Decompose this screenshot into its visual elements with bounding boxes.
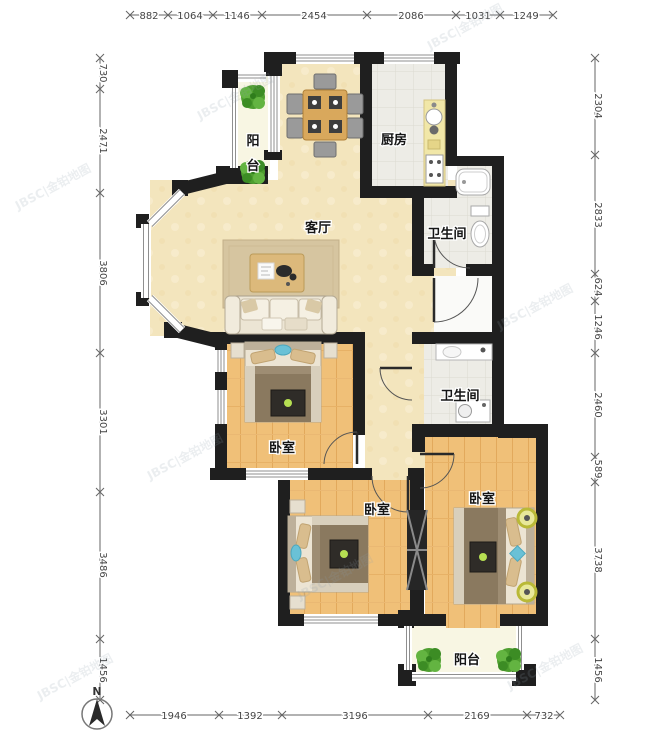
sofa — [225, 296, 337, 334]
window-bedroom-master-1 — [215, 350, 227, 372]
living-set — [223, 240, 339, 334]
nightstand — [231, 343, 244, 358]
dining-chair — [347, 118, 363, 138]
floor-plan-page: 客厅 厨房 卫生间 卫生间 卧室 卧室 卧室 阳 台 阳台 882 1064 1… — [0, 0, 672, 737]
window-bedroom-master-south — [246, 468, 308, 480]
dim-label: 1392 — [237, 711, 262, 722]
dimension-labels-right: 2304 2833 624 1246 2460 589 3738 1456 — [592, 93, 603, 682]
window-kitchen — [384, 52, 434, 64]
label-bath-upper: 卫生间 — [427, 226, 466, 242]
nightstand — [324, 343, 337, 358]
dim-label: 732 — [534, 711, 553, 722]
sink-faucet — [430, 126, 439, 135]
dim-label: 3738 — [592, 547, 603, 572]
plant — [416, 648, 441, 672]
dim-label: 1249 — [513, 11, 538, 22]
dim-label: 1246 — [592, 314, 603, 339]
dim-label: 2454 — [301, 11, 326, 22]
dim-label: 589 — [592, 459, 603, 478]
watermark-text: JBSC|金铂地图 — [11, 160, 93, 213]
label-bedroom-right: 卧室 — [469, 491, 495, 507]
dim-label: 2460 — [592, 392, 603, 417]
dim-label: 1064 — [177, 11, 202, 22]
compass-icon: N — [82, 685, 112, 729]
toilet-tank — [471, 206, 489, 216]
compass-north-label: N — [92, 685, 101, 698]
label-living: 客厅 — [305, 220, 331, 236]
watermark-text: JBSC|金铂地图 — [493, 280, 575, 333]
nightstand — [290, 500, 305, 513]
dim-label: 1146 — [224, 11, 249, 22]
stove — [426, 155, 443, 183]
wardrobe — [407, 510, 427, 590]
dim-label: 882 — [139, 11, 158, 22]
dim-label: 2169 — [464, 711, 489, 722]
dining-chair — [287, 118, 303, 138]
dining-chair — [287, 94, 303, 114]
dimension-labels-left: 730 2471 3806 3301 3486 1456 — [97, 63, 108, 682]
dim-label: 3486 — [97, 552, 108, 577]
dim-label: 2086 — [398, 11, 423, 22]
plant — [496, 648, 521, 672]
dim-label: 624 — [592, 277, 603, 296]
vestibule-floor — [434, 276, 492, 332]
kitchen-sink — [426, 109, 442, 125]
window-bedroom-master-2 — [215, 390, 227, 424]
label-bath-lower: 卫生间 — [440, 388, 479, 404]
hallway-floor — [365, 332, 425, 480]
dim-label: 3806 — [97, 260, 108, 285]
label-bedroom-mid: 卧室 — [364, 502, 390, 518]
dim-label: 2304 — [592, 93, 603, 118]
dining-chair — [314, 74, 336, 89]
kitchen-counter — [424, 100, 445, 186]
watermark-text: JBSC|金铂地图 — [423, 0, 505, 53]
dim-label: 3196 — [342, 711, 367, 722]
window-dining — [296, 52, 354, 64]
dim-label: 3301 — [97, 409, 108, 434]
dim-label: 730 — [97, 63, 108, 82]
label-bedroom-master: 卧室 — [269, 440, 295, 456]
dim-label: 2471 — [97, 128, 108, 153]
table-decor — [276, 265, 292, 277]
dining-chair — [347, 94, 363, 114]
label-kitchen: 厨房 — [381, 132, 407, 148]
dim-label: 2833 — [592, 202, 603, 227]
dim-label: 1456 — [592, 657, 603, 682]
window-bedroom-mid-south — [304, 614, 378, 626]
wash-basin — [443, 347, 461, 358]
floor-plan-canvas: 客厅 厨房 卫生间 卫生间 卧室 卧室 卧室 阳 台 阳台 882 1064 1… — [0, 0, 672, 737]
label-balcony-top-2: 台 — [246, 158, 259, 174]
label-balcony-bottom: 阳台 — [454, 652, 480, 668]
bed-master — [231, 342, 337, 422]
dim-label: 1946 — [161, 711, 186, 722]
balcony-door-threshold — [446, 610, 500, 628]
label-balcony-top-1: 阳 — [246, 134, 259, 149]
dining-chair — [314, 142, 336, 157]
bed-right — [454, 508, 536, 604]
